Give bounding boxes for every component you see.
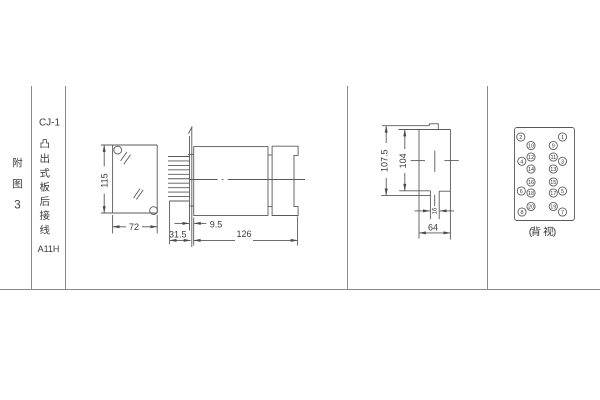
svg-text:3: 3 bbox=[561, 159, 564, 165]
svg-text:4: 4 bbox=[520, 159, 523, 165]
svg-text:19: 19 bbox=[550, 205, 556, 211]
svg-text:9: 9 bbox=[552, 144, 555, 150]
svg-text:18: 18 bbox=[528, 191, 534, 197]
svg-text:15: 15 bbox=[550, 180, 556, 186]
svg-text:3: 3 bbox=[14, 200, 20, 212]
svg-text:31.5: 31.5 bbox=[169, 229, 187, 239]
svg-text:6: 6 bbox=[520, 189, 523, 195]
svg-text:20: 20 bbox=[528, 205, 534, 211]
svg-text:14: 14 bbox=[528, 167, 534, 173]
svg-text:12: 12 bbox=[528, 155, 534, 161]
svg-text:72: 72 bbox=[129, 222, 139, 232]
svg-text:16: 16 bbox=[432, 207, 438, 214]
svg-text:115: 115 bbox=[99, 173, 109, 187]
svg-text:107.5: 107.5 bbox=[379, 149, 389, 172]
svg-text:CJ-1: CJ-1 bbox=[39, 118, 61, 129]
svg-text:11: 11 bbox=[550, 155, 556, 161]
svg-text:9.5: 9.5 bbox=[210, 220, 223, 230]
svg-text:64: 64 bbox=[428, 223, 438, 233]
svg-text:A11H: A11H bbox=[38, 244, 60, 254]
svg-text:10: 10 bbox=[528, 144, 534, 150]
svg-text:1: 1 bbox=[561, 135, 564, 141]
svg-text:104: 104 bbox=[398, 153, 408, 168]
svg-text:126: 126 bbox=[236, 229, 251, 239]
svg-text:8: 8 bbox=[520, 210, 523, 216]
svg-text:): ) bbox=[553, 226, 557, 238]
svg-text:16: 16 bbox=[528, 180, 534, 186]
svg-text:7: 7 bbox=[561, 210, 564, 216]
svg-text:2: 2 bbox=[519, 135, 522, 141]
svg-text:13: 13 bbox=[550, 167, 556, 173]
svg-text:5: 5 bbox=[561, 189, 564, 195]
svg-text:17: 17 bbox=[550, 191, 556, 197]
